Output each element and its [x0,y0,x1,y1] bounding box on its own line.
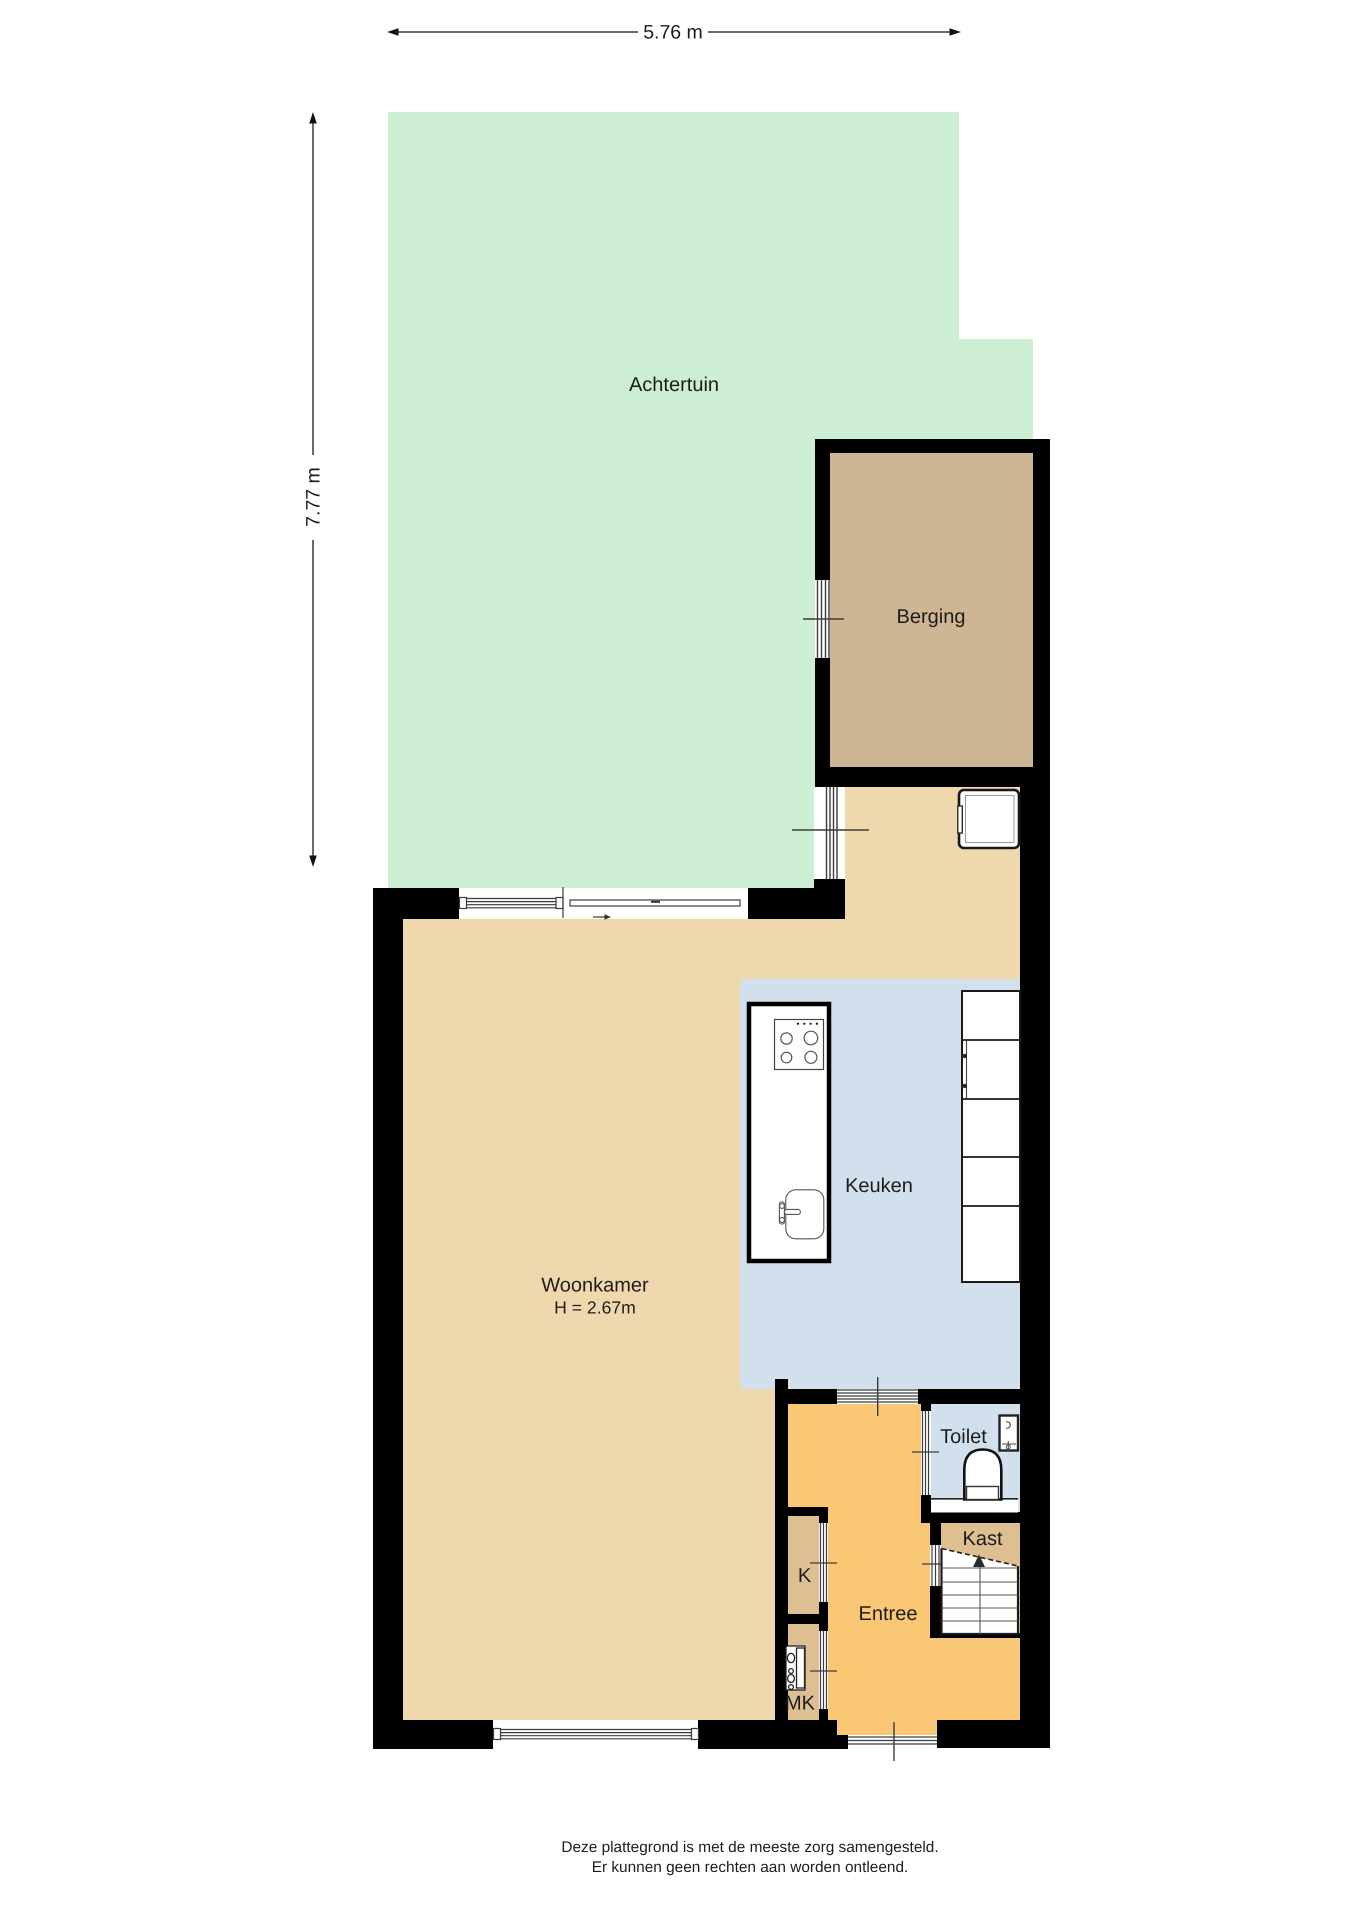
svg-text:Keuken: Keuken [845,1175,913,1197]
svg-text:Berging: Berging [897,606,966,628]
svg-text:Kast: Kast [962,1528,1002,1550]
svg-text:K: K [798,1565,812,1587]
svg-text:Achtertuin: Achtertuin [629,374,719,396]
svg-text:Woonkamer: Woonkamer [541,1275,649,1297]
svg-text:7.77 m: 7.77 m [303,467,325,527]
svg-text:5.76 m: 5.76 m [643,22,703,44]
svg-text:Entree: Entree [859,1603,918,1625]
svg-text:H = 2.67m: H = 2.67m [554,1298,636,1318]
svg-text:MK: MK [785,1693,816,1715]
svg-text:Er kunnen geen rechten aan wor: Er kunnen geen rechten aan worden ontlee… [592,1859,909,1876]
svg-text:Deze plattegrond is met de mee: Deze plattegrond is met de meeste zorg s… [561,1839,938,1856]
svg-text:Toilet: Toilet [940,1426,987,1448]
